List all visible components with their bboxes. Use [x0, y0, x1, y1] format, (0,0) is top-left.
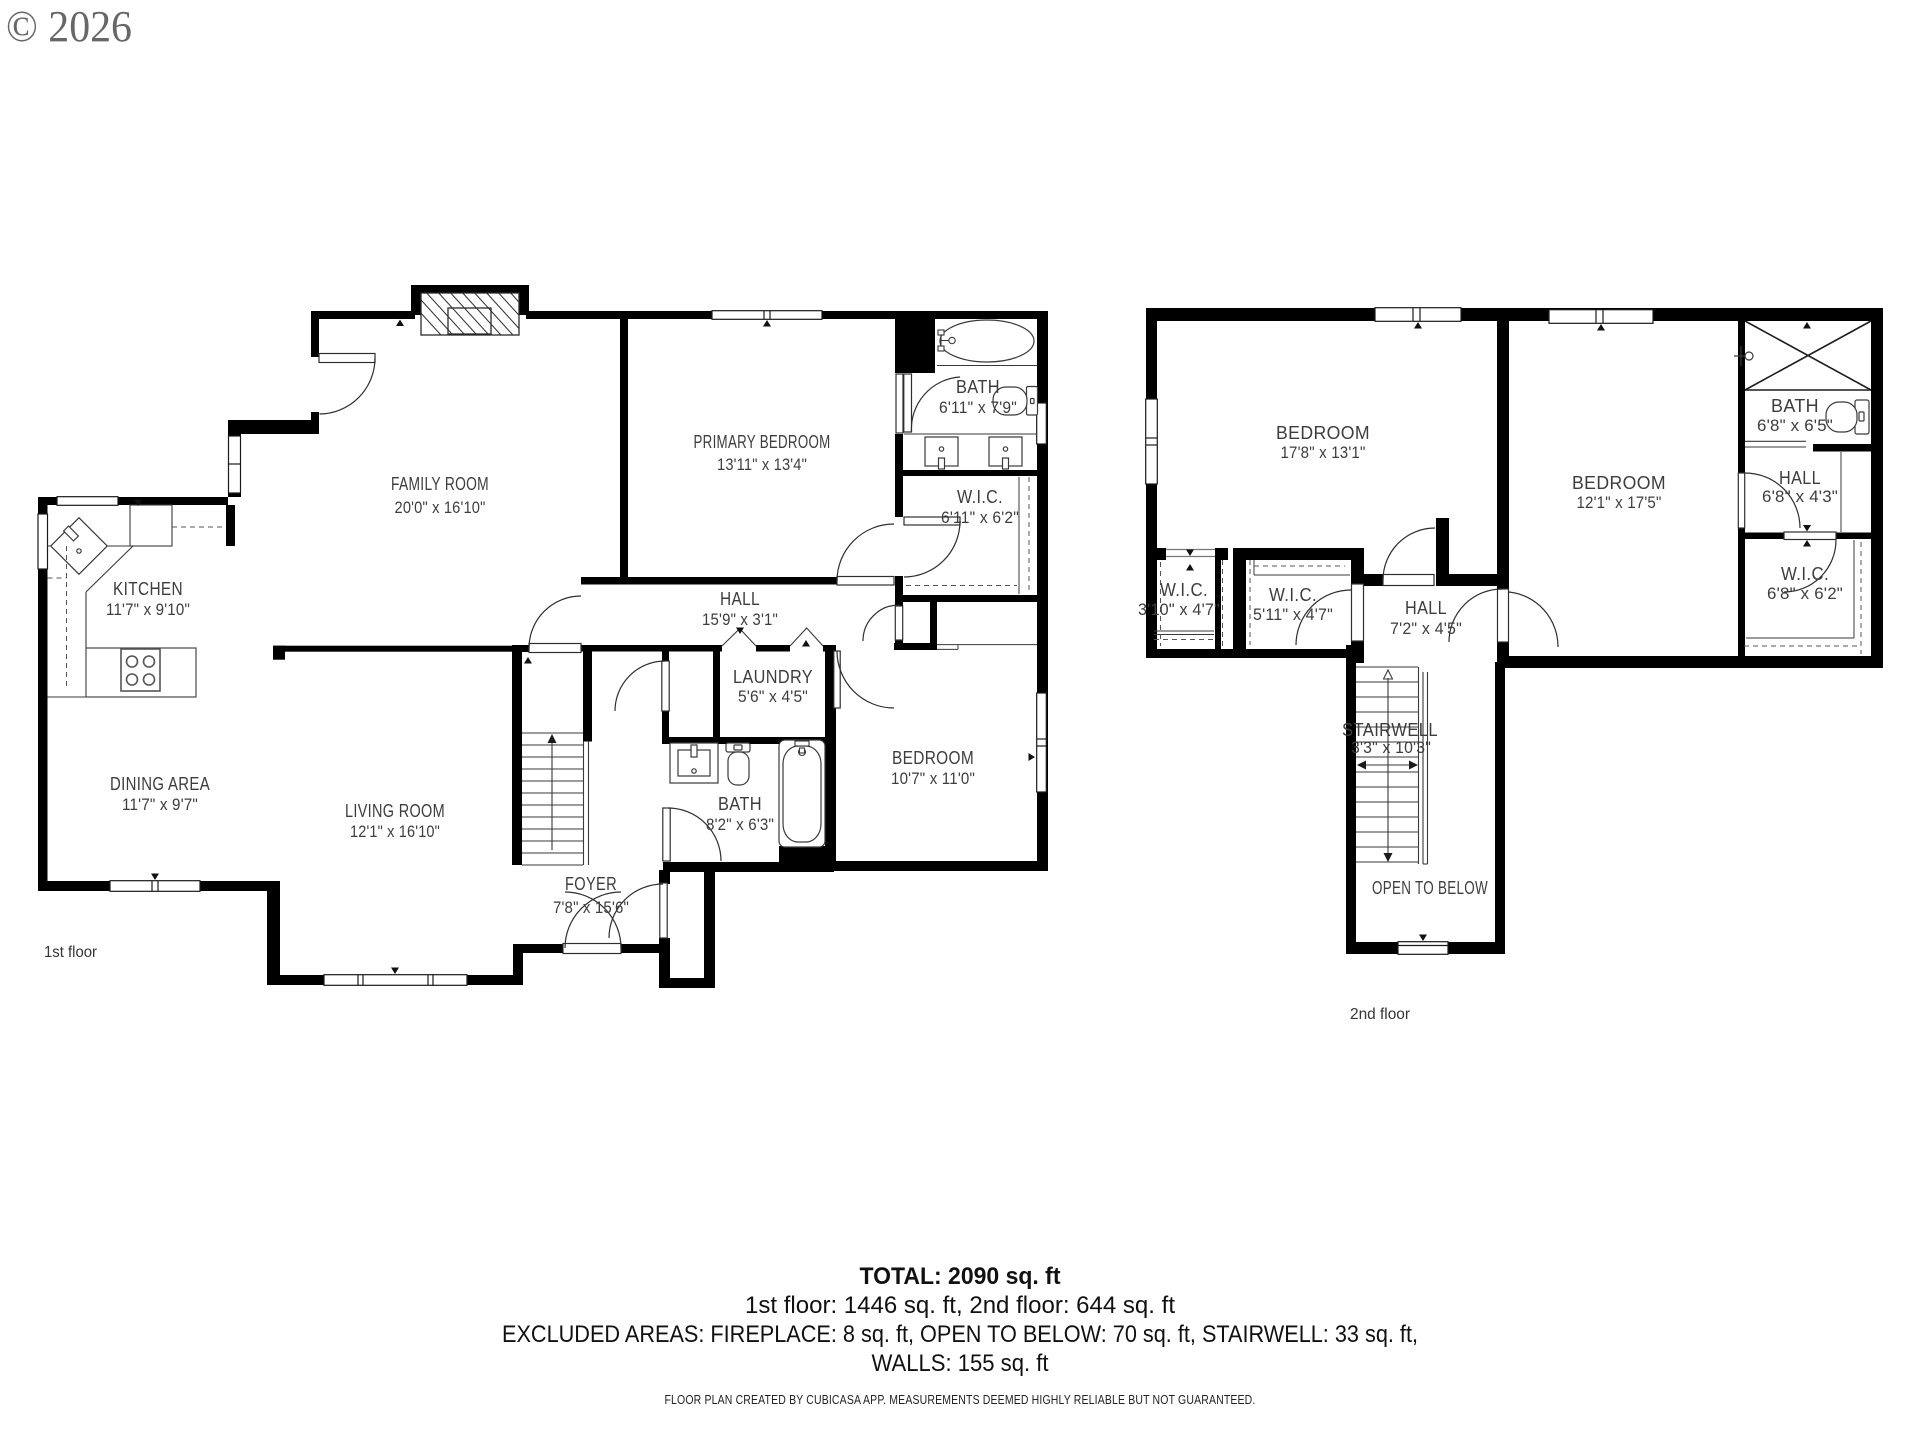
svg-text:DINING AREA: DINING AREA	[110, 774, 210, 794]
svg-text:15'9" x 3'1": 15'9" x 3'1"	[702, 610, 778, 629]
svg-text:5'11" x 4'7": 5'11" x 4'7"	[1253, 605, 1333, 624]
svg-text:WALLS: 155 sq. ft: WALLS: 155 sq. ft	[872, 1350, 1049, 1377]
svg-text:LIVING ROOM: LIVING ROOM	[345, 801, 445, 821]
svg-text:8'2" x 6'3": 8'2" x 6'3"	[706, 815, 774, 834]
svg-text:7'8" x 15'6": 7'8" x 15'6"	[553, 898, 629, 917]
svg-text:3'3" x 10'3": 3'3" x 10'3"	[1351, 738, 1431, 757]
svg-text:5'6" x 4'5": 5'6" x 4'5"	[738, 687, 808, 706]
svg-text:12'1" x 17'5": 12'1" x 17'5"	[1577, 493, 1662, 512]
svg-text:11'7" x 9'7": 11'7" x 9'7"	[122, 795, 198, 814]
svg-text:STAIRWELL: STAIRWELL	[1342, 720, 1438, 740]
svg-text:2nd floor: 2nd floor	[1350, 1006, 1411, 1023]
svg-text:7'2" x 4'5": 7'2" x 4'5"	[1390, 619, 1462, 638]
svg-text:1st floor: 1446 sq. ft, 2nd fl: 1st floor: 1446 sq. ft, 2nd floor: 644 s…	[745, 1292, 1175, 1319]
svg-text:10'7" x 11'0": 10'7" x 11'0"	[891, 769, 975, 788]
svg-text:W.I.C.: W.I.C.	[1781, 564, 1829, 584]
svg-text:KITCHEN: KITCHEN	[113, 579, 183, 599]
svg-text:W.I.C.: W.I.C.	[1160, 580, 1208, 600]
svg-text:6'8" x 4'3": 6'8" x 4'3"	[1762, 487, 1838, 506]
svg-text:20'0" x 16'10": 20'0" x 16'10"	[395, 498, 486, 517]
svg-text:LAUNDRY: LAUNDRY	[733, 667, 813, 687]
svg-text:W.I.C.: W.I.C.	[957, 487, 1003, 507]
svg-text:EXCLUDED AREAS: FIREPLACE: 8 s: EXCLUDED AREAS: FIREPLACE: 8 sq. ft, OPE…	[502, 1321, 1418, 1348]
svg-text:BEDROOM: BEDROOM	[892, 748, 974, 768]
svg-text:BATH: BATH	[956, 377, 1000, 397]
svg-text:BEDROOM: BEDROOM	[1572, 473, 1666, 493]
svg-text:17'8" x 13'1": 17'8" x 13'1"	[1281, 443, 1366, 462]
svg-text:FAMILY ROOM: FAMILY ROOM	[391, 474, 489, 494]
svg-text:HALL: HALL	[1405, 598, 1447, 618]
svg-text:3'10" x 4'7": 3'10" x 4'7"	[1138, 600, 1220, 619]
svg-text:HALL: HALL	[720, 589, 760, 609]
svg-text:6'8" x 6'2": 6'8" x 6'2"	[1767, 584, 1843, 603]
svg-text:6'8" x 6'5": 6'8" x 6'5"	[1757, 416, 1833, 435]
svg-text:11'7" x 9'10": 11'7" x 9'10"	[106, 600, 190, 619]
svg-text:© 2026: © 2026	[6, 2, 132, 51]
svg-text:TOTAL: 2090 sq. ft: TOTAL: 2090 sq. ft	[860, 1263, 1061, 1290]
svg-text:6'11" x 6'2": 6'11" x 6'2"	[941, 508, 1019, 527]
svg-text:13'11" x 13'4": 13'11" x 13'4"	[717, 455, 807, 474]
svg-text:FLOOR PLAN CREATED BY CUBICASA: FLOOR PLAN CREATED BY CUBICASA APP. MEAS…	[665, 1392, 1256, 1407]
svg-text:FOYER: FOYER	[565, 874, 617, 894]
svg-text:HALL: HALL	[1779, 468, 1821, 488]
svg-text:OPEN TO BELOW: OPEN TO BELOW	[1372, 878, 1488, 898]
svg-text:W.I.C.: W.I.C.	[1269, 585, 1317, 605]
svg-text:1st floor: 1st floor	[44, 944, 98, 961]
svg-text:6'11" x 7'9": 6'11" x 7'9"	[939, 398, 1017, 417]
svg-text:BATH: BATH	[1771, 396, 1819, 416]
svg-text:BEDROOM: BEDROOM	[1276, 423, 1370, 443]
svg-text:PRIMARY BEDROOM: PRIMARY BEDROOM	[694, 432, 831, 452]
svg-text:BATH: BATH	[718, 794, 762, 814]
svg-text:12'1" x 16'10": 12'1" x 16'10"	[350, 822, 440, 841]
